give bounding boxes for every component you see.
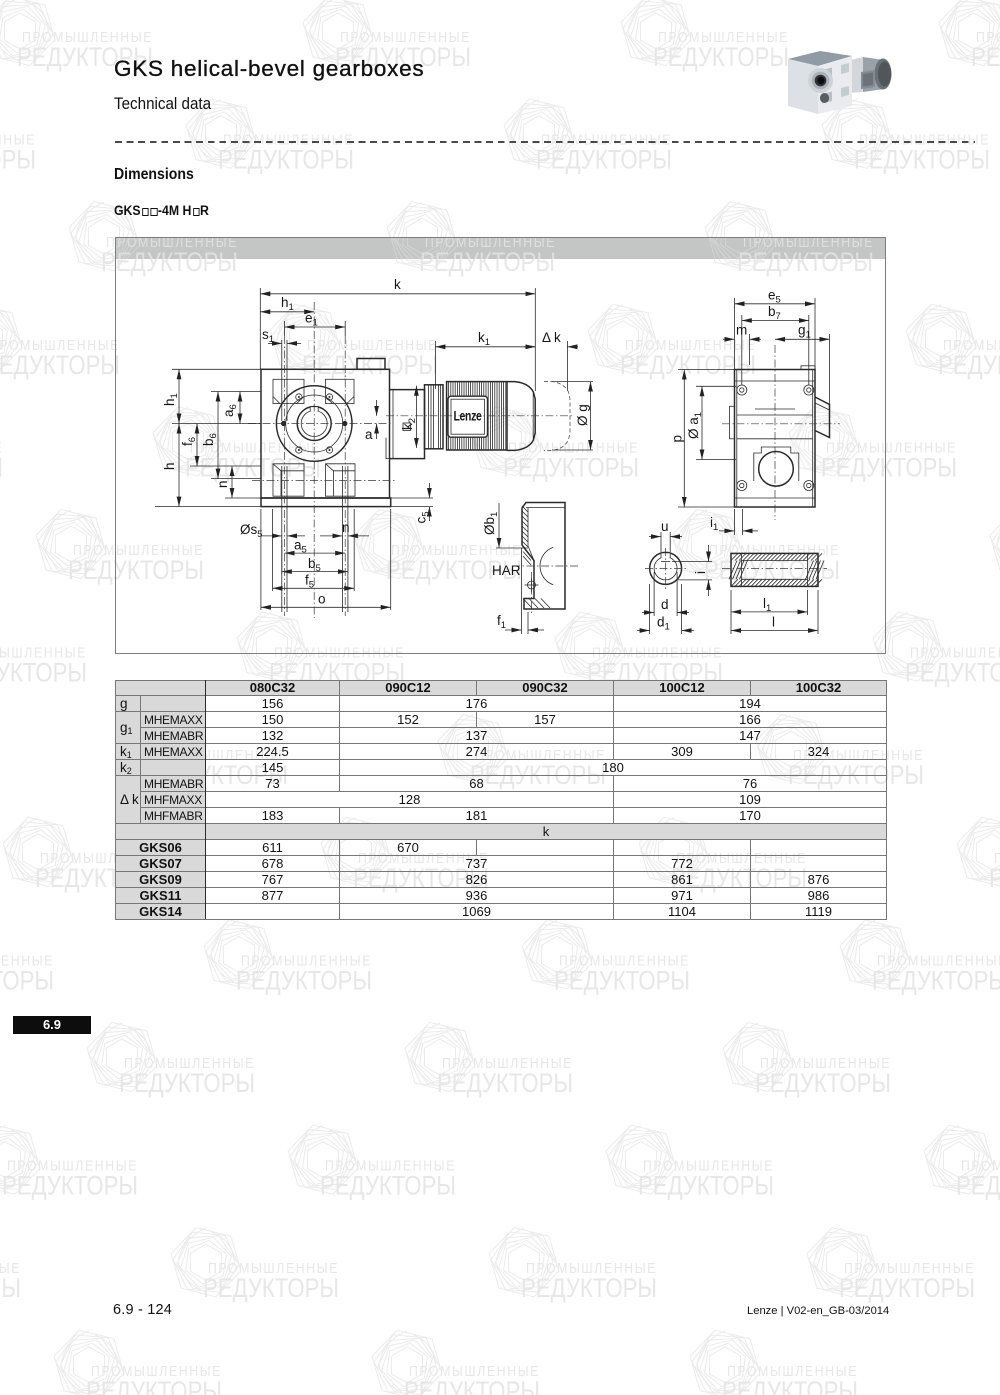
svg-text:l: l [772,615,775,630]
svg-text:k: k [394,277,401,292]
svg-text:f1: f1 [497,613,506,631]
svg-text:f5: f5 [305,573,314,591]
svg-text:Δ k: Δ k [542,330,561,345]
svg-text:d1: d1 [657,615,670,633]
svg-text:m: m [736,323,747,338]
svg-text:Ø a1: Ø a1 [686,412,704,439]
svg-text:n: n [342,520,350,535]
svg-text:h1: h1 [281,295,294,313]
svg-text:HAR: HAR [492,563,521,578]
svg-text:Øb1: Øb1 [482,512,500,535]
svg-text:e1: e1 [305,311,318,329]
svg-text:Øs5: Øs5 [240,522,263,540]
svg-text:c5: c5 [414,511,432,523]
svg-text:u: u [661,519,669,534]
svg-text:Ø g: Ø g [575,404,590,426]
svg-text:h: h [162,462,177,470]
svg-text:f6: f6 [180,437,198,446]
svg-text:i1: i1 [710,515,718,533]
svg-text:p: p [670,435,685,443]
svg-text:l1: l1 [763,596,771,614]
svg-text:h1: h1 [162,393,180,406]
svg-text:d: d [661,597,669,612]
svg-text:e5: e5 [768,288,781,306]
svg-text:b7: b7 [768,304,781,322]
svg-text:n: n [215,480,230,488]
svg-text:a: a [365,427,373,442]
svg-text:i: i [693,571,708,574]
svg-text:s1: s1 [262,327,274,345]
svg-text:o: o [318,592,326,607]
svg-text:b6: b6 [201,433,219,446]
svg-text:k1: k1 [478,330,490,348]
svg-text:a6: a6 [221,404,239,417]
